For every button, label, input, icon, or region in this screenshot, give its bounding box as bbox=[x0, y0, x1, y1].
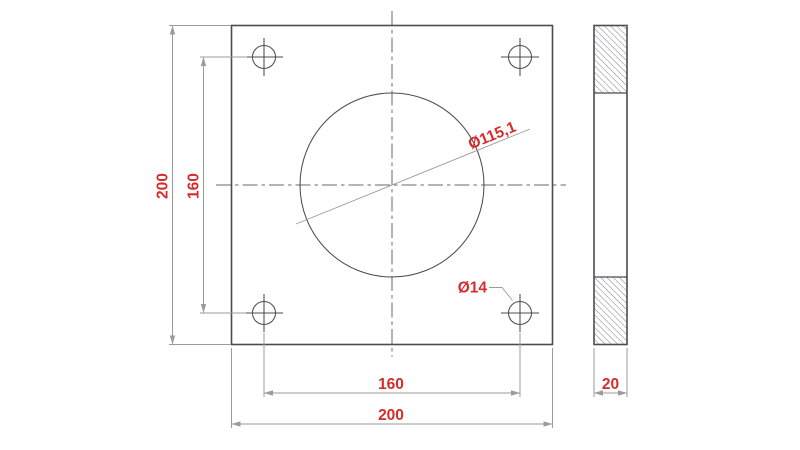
bolt-hole-bottom-right bbox=[501, 294, 539, 332]
bolt-hole-top-left bbox=[245, 38, 283, 76]
hole-spacing-vertical-label: 160 bbox=[186, 173, 203, 199]
hatch-region-bottom bbox=[594, 277, 627, 345]
thickness-label: 20 bbox=[602, 376, 619, 393]
arrowhead-up bbox=[170, 26, 175, 35]
center-bore-diameter-label: Ø115,1 bbox=[466, 118, 519, 153]
hole-spacing-horizontal-label: 160 bbox=[378, 376, 404, 393]
center-bore-callout: Ø115,1 bbox=[296, 118, 530, 224]
side-section-view bbox=[594, 26, 627, 345]
corner-hole-callout: Ø14 bbox=[458, 280, 513, 301]
plate-height-label: 200 bbox=[155, 173, 172, 199]
arrowhead-up bbox=[201, 57, 206, 66]
arrowhead-right bbox=[511, 390, 520, 395]
corner-hole-diameter-label: Ø14 bbox=[458, 280, 488, 297]
arrowhead-right bbox=[618, 390, 627, 395]
arrowhead-left bbox=[232, 421, 241, 426]
technical-drawing-canvas: Ø115,1 Ø14 200 160 160 20 bbox=[0, 0, 800, 450]
bolt-hole-bottom-left bbox=[245, 294, 283, 332]
hatch-region-top bbox=[594, 26, 627, 94]
arrowhead-down bbox=[201, 304, 206, 313]
hole-leader-line bbox=[489, 288, 513, 301]
plate-width-label: 200 bbox=[378, 407, 404, 424]
arrowhead-right bbox=[544, 421, 553, 426]
flange-drawing-svg: Ø115,1 Ø14 200 160 160 20 bbox=[0, 0, 800, 450]
arrowhead-down bbox=[170, 336, 175, 345]
arrowhead-left bbox=[264, 390, 273, 395]
bolt-hole-top-right bbox=[501, 38, 539, 76]
dimension-thickness: 20 bbox=[594, 348, 627, 397]
front-view bbox=[216, 11, 566, 357]
